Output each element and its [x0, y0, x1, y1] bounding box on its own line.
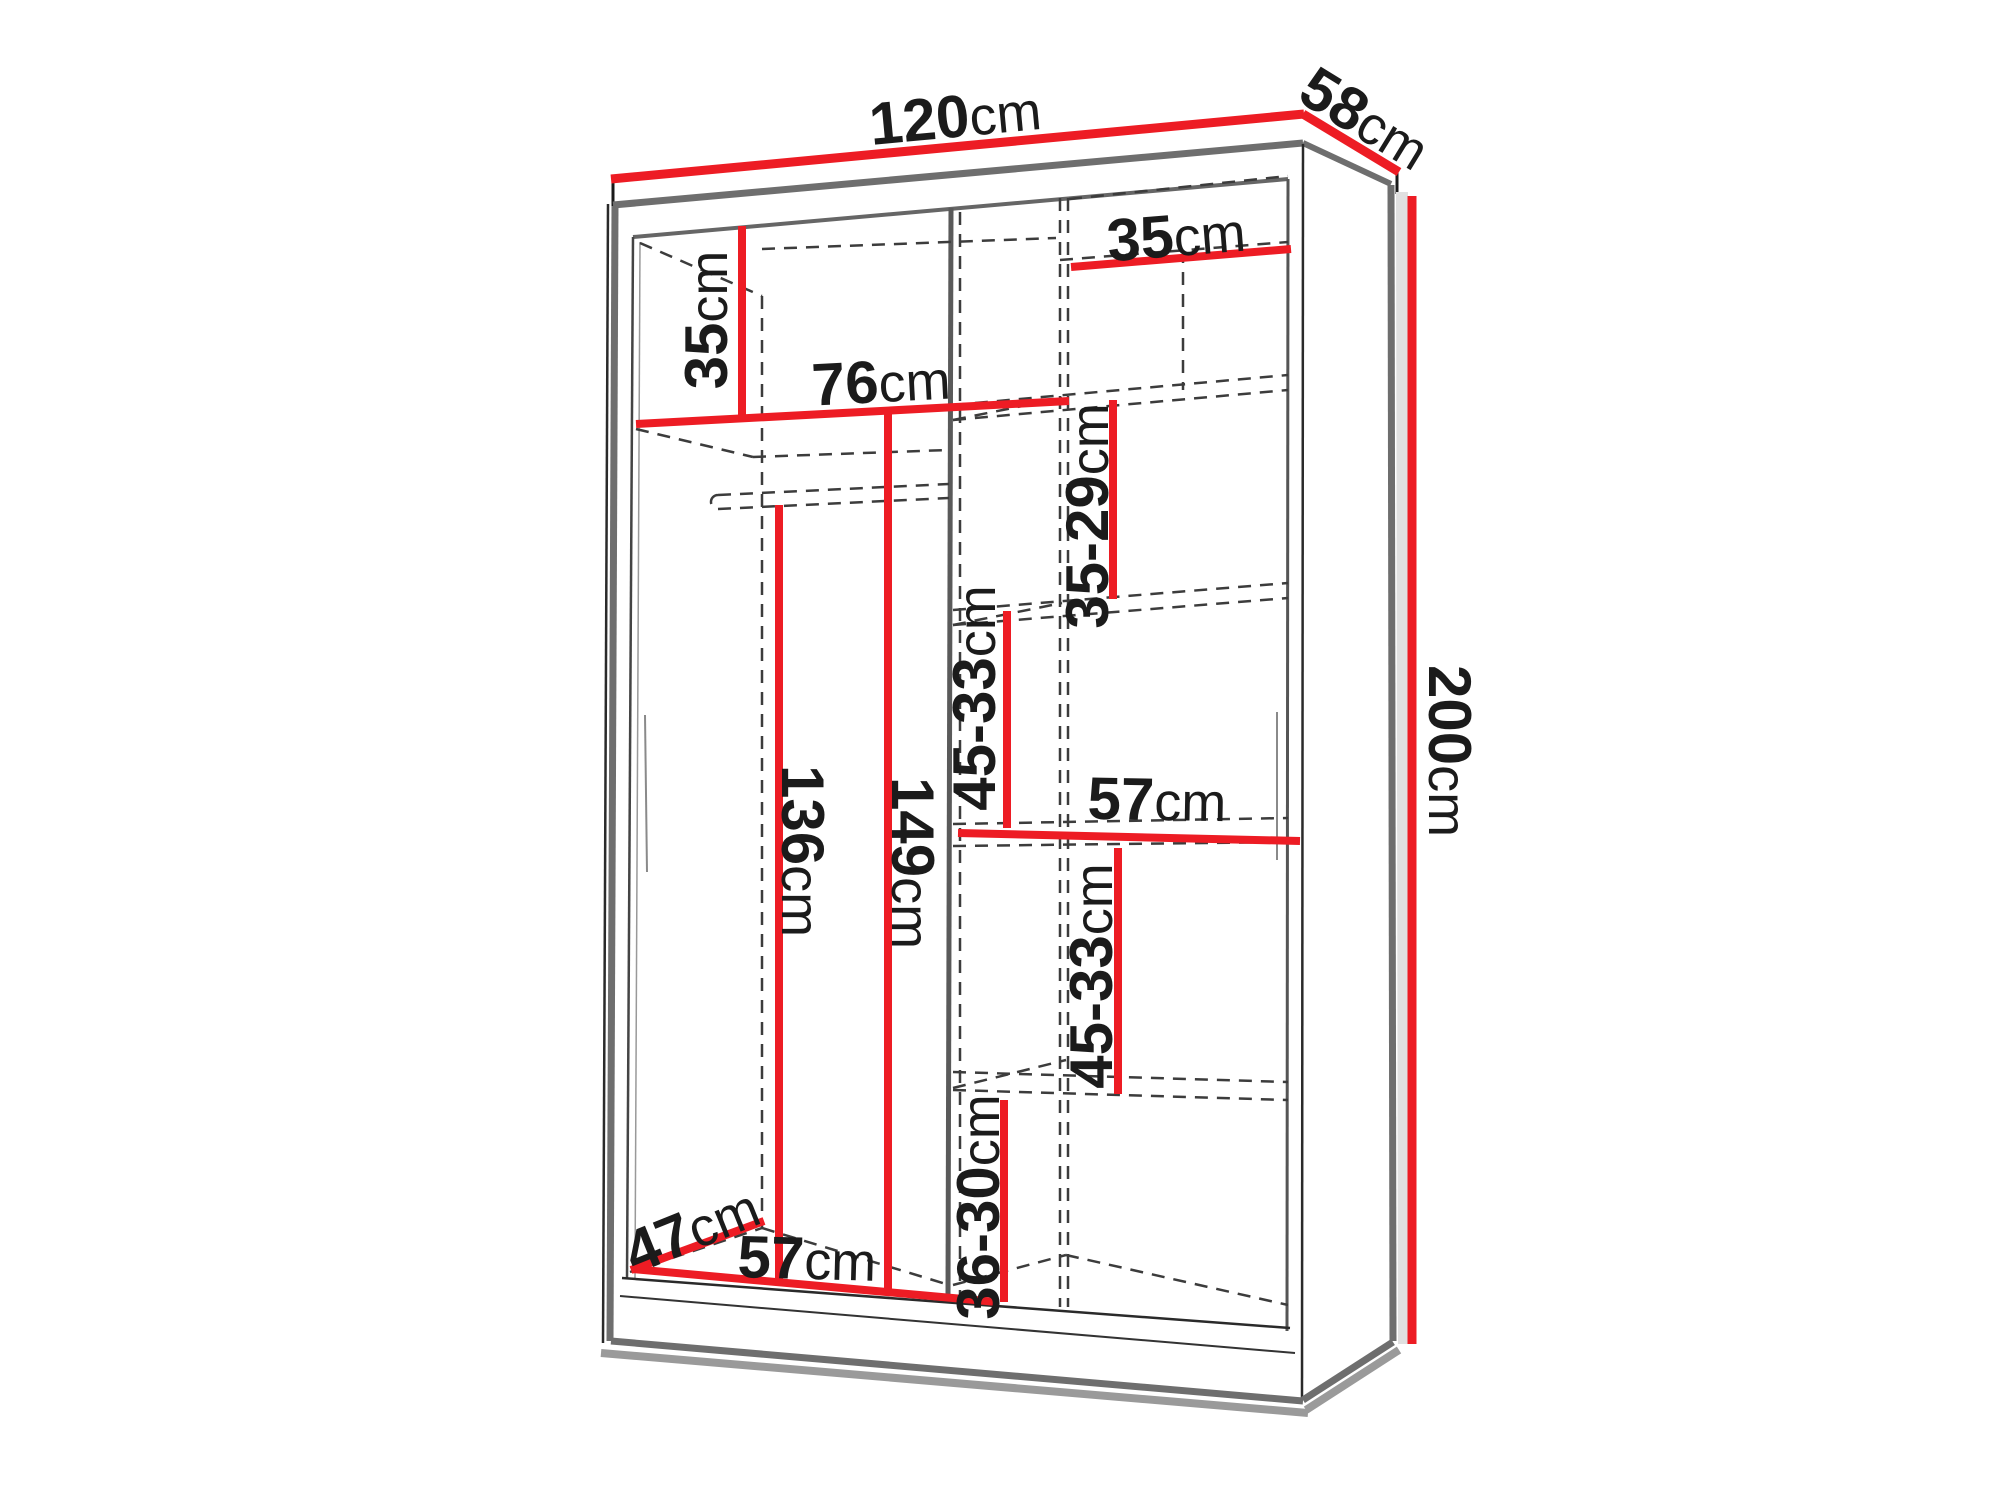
svg-text:149cm: 149cm — [879, 777, 946, 949]
svg-text:36-30cm: 36-30cm — [945, 1094, 1012, 1319]
svg-text:57cm: 57cm — [1087, 765, 1227, 834]
svg-text:35-29cm: 35-29cm — [1054, 403, 1121, 628]
svg-text:200cm: 200cm — [1416, 665, 1483, 837]
svg-text:35cm: 35cm — [673, 251, 740, 390]
svg-text:45-33cm: 45-33cm — [1058, 863, 1125, 1088]
svg-text:76cm: 76cm — [810, 344, 952, 418]
svg-text:45-33cm: 45-33cm — [941, 585, 1008, 810]
svg-text:35cm: 35cm — [1104, 197, 1248, 275]
svg-text:57cm: 57cm — [737, 1223, 877, 1294]
svg-text:136cm: 136cm — [769, 765, 836, 937]
